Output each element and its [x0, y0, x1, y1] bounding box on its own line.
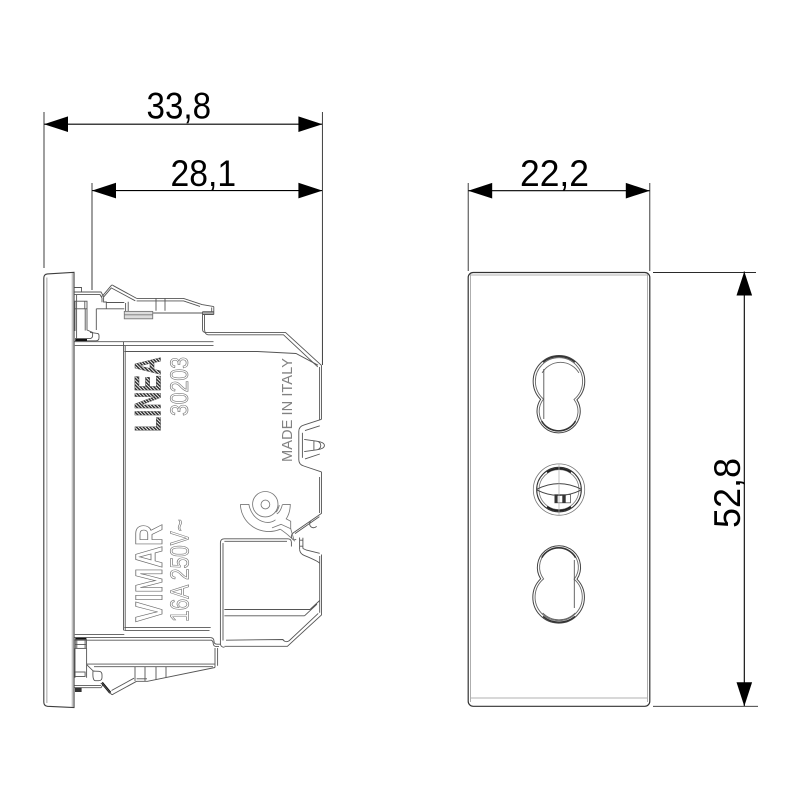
svg-text:28,1: 28,1 [171, 153, 237, 194]
svg-text:33,8: 33,8 [147, 85, 212, 126]
svg-text:52,8: 52,8 [707, 458, 748, 528]
svg-text:22,2: 22,2 [520, 153, 589, 194]
svg-text:LINEA: LINEA [128, 357, 169, 432]
svg-text:MADE IN ITALY: MADE IN ITALY [279, 358, 296, 462]
svg-text:30203: 30203 [166, 357, 194, 416]
svg-text:16A 250V~: 16A 250V~ [165, 519, 195, 622]
